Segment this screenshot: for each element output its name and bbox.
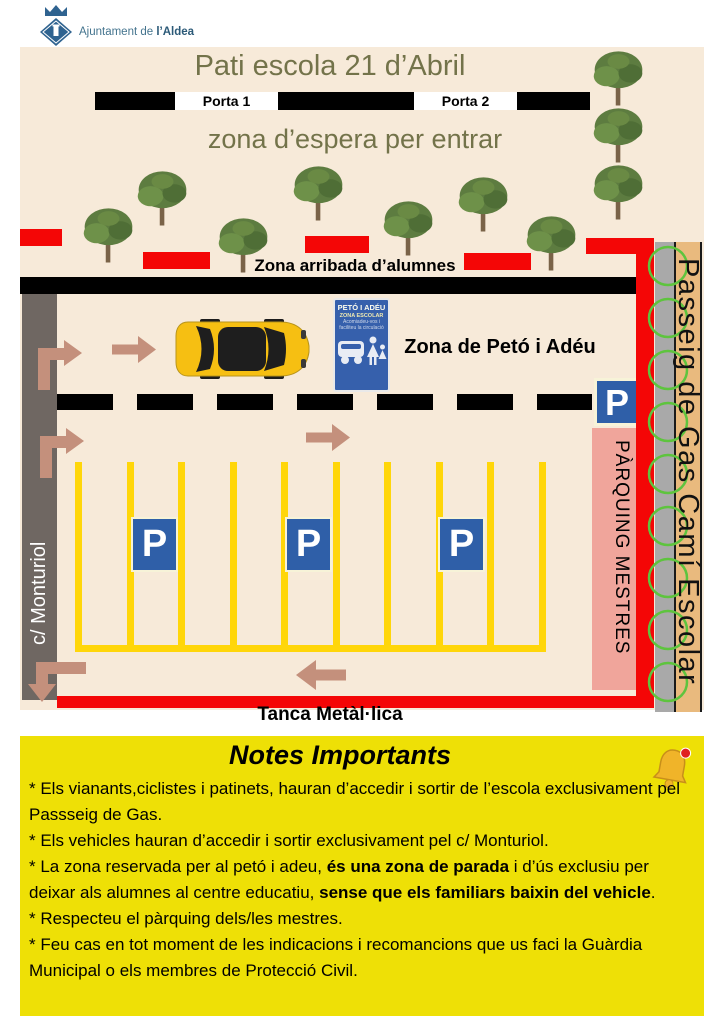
tree-icon bbox=[591, 162, 646, 227]
street-monturiol-label: c/ Monturiol bbox=[26, 455, 52, 645]
tree-icon bbox=[456, 174, 511, 239]
entry-arrow-icon bbox=[36, 338, 84, 390]
tree-icon bbox=[591, 48, 646, 113]
tree-icon bbox=[81, 205, 136, 270]
car-icon bbox=[172, 318, 312, 380]
kiss-sign-line3: faciliteu la circulació bbox=[335, 325, 388, 331]
teachers-parking-label: PÀRQUING MESTRES bbox=[609, 440, 633, 690]
notes-title: Notes Importants bbox=[20, 740, 660, 771]
parking-bay-line bbox=[178, 462, 185, 652]
note-item: * Els vehicles hauran d’accedir i sortir… bbox=[29, 828, 697, 854]
notes-body: * Els vianants,ciclistes i patinets, hau… bbox=[29, 776, 697, 984]
note-item: * Respecteu el pàrquing dels/les mestres… bbox=[29, 906, 697, 932]
note-item: * Feu cas en tot moment de les indicacio… bbox=[29, 932, 697, 984]
org-bold: l’Aldea bbox=[156, 26, 194, 38]
parking-sign-icon: P bbox=[594, 378, 640, 426]
header-org-name: Ajuntament de l’Aldea bbox=[79, 26, 194, 38]
parking-sign-icon: P bbox=[131, 517, 178, 572]
tree-icon bbox=[135, 168, 190, 233]
kiss-and-go-label: Zona de Petó i Adéu bbox=[400, 336, 600, 359]
fence-label: Tanca Metàl·lica bbox=[60, 704, 600, 726]
promenade-label: Passeig de Gas Camí Escolar bbox=[673, 258, 703, 708]
tree-icon bbox=[291, 163, 346, 228]
waiting-zone-label: zona d’espera per entrar bbox=[20, 124, 690, 155]
tree-icon bbox=[381, 198, 436, 263]
parking-bay-baseline bbox=[75, 645, 546, 652]
lane-divider-dashed bbox=[57, 394, 592, 410]
flyer-page: Ajuntament de l’Aldea Pati escola 21 d’A… bbox=[0, 0, 724, 1024]
tree-icon bbox=[591, 105, 646, 170]
parking-bay-line bbox=[333, 462, 340, 652]
parking-bay-line bbox=[230, 462, 237, 652]
parking-bay-line bbox=[539, 462, 546, 652]
kiss-and-go-sign: PETÓ I ADÉU ZONA ESCOLAR Acomiadeu-vos i… bbox=[333, 298, 390, 392]
note-item: * La zona reservada per al petó i adeu, … bbox=[29, 854, 697, 906]
red-curb-mark bbox=[305, 236, 369, 253]
parking-sign-icon: P bbox=[438, 517, 485, 572]
red-curb-mark bbox=[20, 229, 62, 246]
flow-arrow-right-icon bbox=[112, 336, 156, 363]
flow-arrow-left-icon bbox=[296, 660, 346, 690]
municipal-crest-icon bbox=[38, 4, 74, 46]
parking-bay-line bbox=[75, 462, 82, 652]
porta-1-label: Porta 1 bbox=[175, 92, 278, 110]
arrival-wall-bar bbox=[20, 277, 642, 294]
kiss-sign-pictogram-icon bbox=[337, 333, 387, 369]
tree-icon bbox=[524, 213, 579, 278]
parking-bay-line bbox=[384, 462, 391, 652]
page-title: Pati escola 21 d’Abril bbox=[20, 50, 640, 83]
parking-bay-line bbox=[487, 462, 494, 652]
note-item: * Els vianants,ciclistes i patinets, hau… bbox=[29, 776, 697, 828]
org-prefix: Ajuntament de bbox=[79, 26, 156, 38]
tree-icon bbox=[216, 215, 271, 280]
porta-2-label: Porta 2 bbox=[414, 92, 517, 110]
parking-sign-icon: P bbox=[285, 517, 332, 572]
kiss-sign-title: PETÓ I ADÉU bbox=[335, 303, 388, 312]
flow-arrow-right-icon bbox=[304, 424, 352, 451]
